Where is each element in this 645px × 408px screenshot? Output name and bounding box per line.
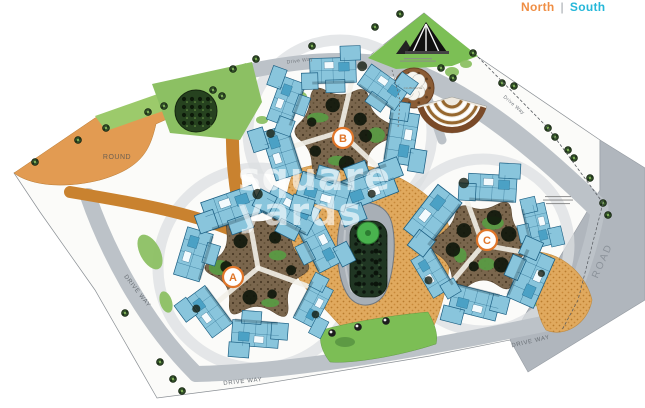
courtyard-tree — [242, 290, 257, 305]
courtyard-lawn — [261, 298, 279, 307]
tree-icon — [538, 270, 545, 277]
tree-icon — [75, 137, 82, 144]
tree-icon — [450, 75, 457, 82]
svg-text:B: B — [339, 133, 347, 145]
courtyard-tree — [457, 223, 472, 238]
tree-icon — [357, 61, 367, 71]
tree-icon — [103, 125, 110, 132]
tree-icon — [252, 189, 262, 199]
gazebo-icon — [328, 329, 336, 337]
south-label: South — [570, 0, 606, 14]
tree-icon — [219, 93, 226, 100]
tree-icon — [145, 109, 152, 116]
courtyard-tree — [234, 234, 248, 248]
cluster-marker-b: B — [333, 128, 353, 148]
tree-icon — [312, 311, 320, 319]
green-patch — [460, 60, 472, 68]
tiny-annotation — [543, 200, 573, 201]
tiny-annotation — [546, 203, 570, 204]
clubhouse-label: CLUBHOUSE — [404, 86, 423, 90]
svg-text:C: C — [483, 235, 491, 247]
tree-icon — [459, 178, 469, 188]
round-area-label: ROUND — [103, 154, 131, 161]
north-label: North — [521, 0, 555, 14]
courtyard-lawn — [269, 250, 287, 260]
tree-icon — [157, 359, 164, 366]
tree-icon — [266, 129, 275, 138]
tree-icon — [499, 80, 506, 87]
courtyard-tree — [469, 261, 479, 271]
tree-icon — [309, 43, 316, 50]
courtyard-tree — [446, 242, 460, 256]
tree-icon — [565, 147, 572, 154]
tree-icon — [210, 87, 217, 94]
courtyard-tree — [501, 226, 517, 242]
tree-icon — [438, 65, 445, 72]
tree-icon — [372, 24, 379, 31]
tiny-annotation — [545, 196, 571, 197]
site-plan-page: ROUND DRIVE WAY DRIVE WAY DRIVE WAY Driv… — [0, 0, 645, 408]
gazebo-icon — [354, 323, 362, 331]
tree-icon — [122, 310, 129, 317]
tree-icon — [587, 175, 594, 182]
courtyard-tree — [307, 117, 316, 126]
courtyard-tree — [326, 98, 340, 112]
tree-icon — [32, 159, 39, 166]
svg-text:A: A — [229, 272, 237, 284]
tree-icon — [368, 190, 376, 198]
tree-icon — [179, 388, 186, 395]
courtyard-tree — [310, 146, 321, 157]
courtyard-tree — [267, 289, 276, 298]
tree-icon — [470, 50, 477, 57]
compass-divider: | — [561, 0, 564, 14]
tree-icon — [253, 56, 260, 63]
tree-icon — [571, 155, 578, 162]
courtyard-tree — [286, 265, 296, 275]
courtyard-tree — [354, 113, 367, 126]
site-plan-map: ROUND DRIVE WAY DRIVE WAY DRIVE WAY Driv… — [0, 0, 645, 408]
cluster-marker-a: A — [223, 267, 243, 287]
compass-legend: North|South — [521, 0, 605, 14]
green-patch — [256, 116, 268, 124]
tree-icon — [230, 66, 237, 73]
tree-icon — [170, 376, 177, 383]
tree-icon — [192, 305, 200, 313]
tree-icon — [397, 11, 404, 18]
gazebo-icon — [382, 317, 390, 325]
courtyard-tree — [359, 129, 372, 142]
tree-icon — [161, 103, 168, 110]
tree-icon — [511, 83, 518, 90]
courtyard-lawn — [478, 258, 495, 271]
cluster-marker-c: C — [477, 230, 497, 250]
tree-icon — [605, 212, 612, 219]
tree-icon — [424, 276, 432, 284]
courtyard-tree — [487, 210, 502, 225]
